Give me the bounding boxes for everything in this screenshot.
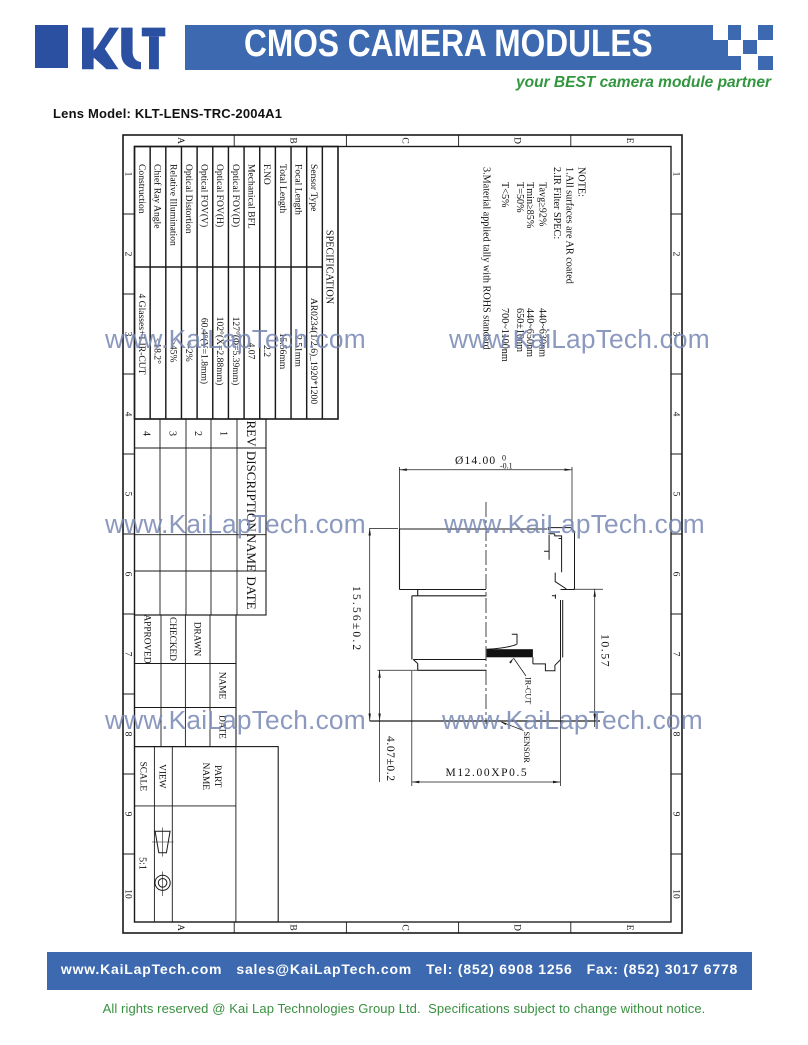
svg-text:E: E bbox=[624, 925, 634, 931]
svg-text:2: 2 bbox=[123, 252, 133, 257]
svg-text:Chief Ray Angle: Chief Ray Angle bbox=[152, 164, 163, 228]
svg-text:1: 1 bbox=[218, 431, 229, 436]
svg-text:6: 6 bbox=[671, 572, 681, 577]
svg-text:B: B bbox=[287, 137, 297, 143]
svg-text:4: 4 bbox=[123, 412, 133, 417]
svg-text:4: 4 bbox=[671, 412, 681, 417]
svg-text:NAME: NAME bbox=[200, 763, 210, 791]
svg-text:C: C bbox=[400, 137, 410, 143]
svg-text:5: 5 bbox=[671, 492, 681, 497]
svg-text:4.07±0.2: 4.07±0.2 bbox=[384, 736, 396, 782]
svg-text:Relative Illumination: Relative Illumination bbox=[167, 164, 178, 246]
svg-text:Ø14.00: Ø14.00 bbox=[455, 455, 496, 467]
svg-text:NAME: NAME bbox=[217, 672, 227, 700]
svg-text:3: 3 bbox=[166, 431, 177, 436]
svg-text:APPROVED: APPROVED bbox=[142, 614, 152, 663]
svg-text:VIEW: VIEW bbox=[157, 764, 167, 788]
svg-text:SPECIFICATION: SPECIFICATION bbox=[324, 230, 335, 305]
svg-text:M12.00XP0.5: M12.00XP0.5 bbox=[446, 767, 529, 779]
svg-text:1: 1 bbox=[671, 172, 681, 177]
svg-text:T=50%: T=50% bbox=[514, 182, 525, 213]
svg-text:Focal Length: Focal Length bbox=[292, 164, 303, 215]
svg-text:SENSOR: SENSOR bbox=[522, 732, 531, 764]
svg-text:6: 6 bbox=[123, 572, 133, 577]
svg-text:Tavg≥92%: Tavg≥92% bbox=[537, 182, 548, 227]
svg-text:Optical FOV(H): Optical FOV(H) bbox=[214, 164, 225, 227]
svg-text:DATE: DATE bbox=[244, 576, 259, 609]
svg-text:1.All surfaces are AR coated: 1.All surfaces are AR coated bbox=[564, 167, 575, 284]
svg-text:9: 9 bbox=[123, 812, 133, 817]
svg-text:A: A bbox=[175, 924, 185, 931]
svg-text:D: D bbox=[512, 137, 522, 144]
svg-text:10: 10 bbox=[123, 889, 133, 899]
svg-text:IR-CUT: IR-CUT bbox=[524, 677, 533, 704]
svg-text:4: 4 bbox=[141, 431, 152, 436]
svg-text:10.57: 10.57 bbox=[599, 634, 613, 668]
svg-text:T<5%: T<5% bbox=[499, 182, 510, 208]
svg-text:Sensor Type: Sensor Type bbox=[308, 164, 319, 211]
svg-text:15.56±0.2: 15.56±0.2 bbox=[350, 586, 362, 652]
svg-text:Construction: Construction bbox=[136, 164, 147, 214]
svg-text:3.Material applied tally with: 3.Material applied tally with ROHS stand… bbox=[481, 167, 492, 350]
svg-text:NOTE:: NOTE: bbox=[576, 167, 587, 197]
svg-text:B: B bbox=[287, 924, 297, 930]
svg-text:SCALE: SCALE bbox=[138, 762, 148, 792]
svg-text:Tmin≥85%: Tmin≥85% bbox=[524, 182, 535, 229]
svg-text:E: E bbox=[624, 138, 634, 144]
svg-text:-0.1: -0.1 bbox=[500, 462, 513, 471]
svg-text:2: 2 bbox=[671, 252, 681, 257]
svg-text:2.IR Filter SPEC:: 2.IR Filter SPEC: bbox=[551, 167, 562, 239]
svg-text:9: 9 bbox=[671, 812, 681, 817]
svg-text:1: 1 bbox=[123, 172, 133, 177]
svg-text:CHECKED: CHECKED bbox=[167, 617, 177, 661]
svg-text:Mechanical BFL: Mechanical BFL bbox=[246, 164, 257, 229]
svg-text:C: C bbox=[400, 924, 410, 930]
svg-text:5: 5 bbox=[123, 492, 133, 497]
svg-text:Total Length: Total Length bbox=[277, 164, 288, 213]
svg-text:F.NO: F.NO bbox=[261, 164, 272, 185]
svg-text:10: 10 bbox=[671, 889, 681, 899]
svg-text:DRAWN: DRAWN bbox=[192, 622, 202, 657]
svg-text:REV: REV bbox=[244, 421, 259, 448]
svg-text:PART: PART bbox=[212, 765, 222, 788]
svg-text:2: 2 bbox=[192, 431, 203, 436]
svg-text:A: A bbox=[175, 137, 185, 144]
svg-text:7: 7 bbox=[671, 652, 681, 657]
svg-text:D: D bbox=[512, 924, 522, 931]
svg-text:5:1: 5:1 bbox=[137, 857, 148, 870]
svg-text:7: 7 bbox=[123, 652, 133, 657]
svg-text:Optical FOV(V): Optical FOV(V) bbox=[199, 164, 210, 227]
svg-text:Optical Distortion: Optical Distortion bbox=[183, 164, 194, 234]
svg-text:Optical FOV(D): Optical FOV(D) bbox=[230, 164, 241, 227]
